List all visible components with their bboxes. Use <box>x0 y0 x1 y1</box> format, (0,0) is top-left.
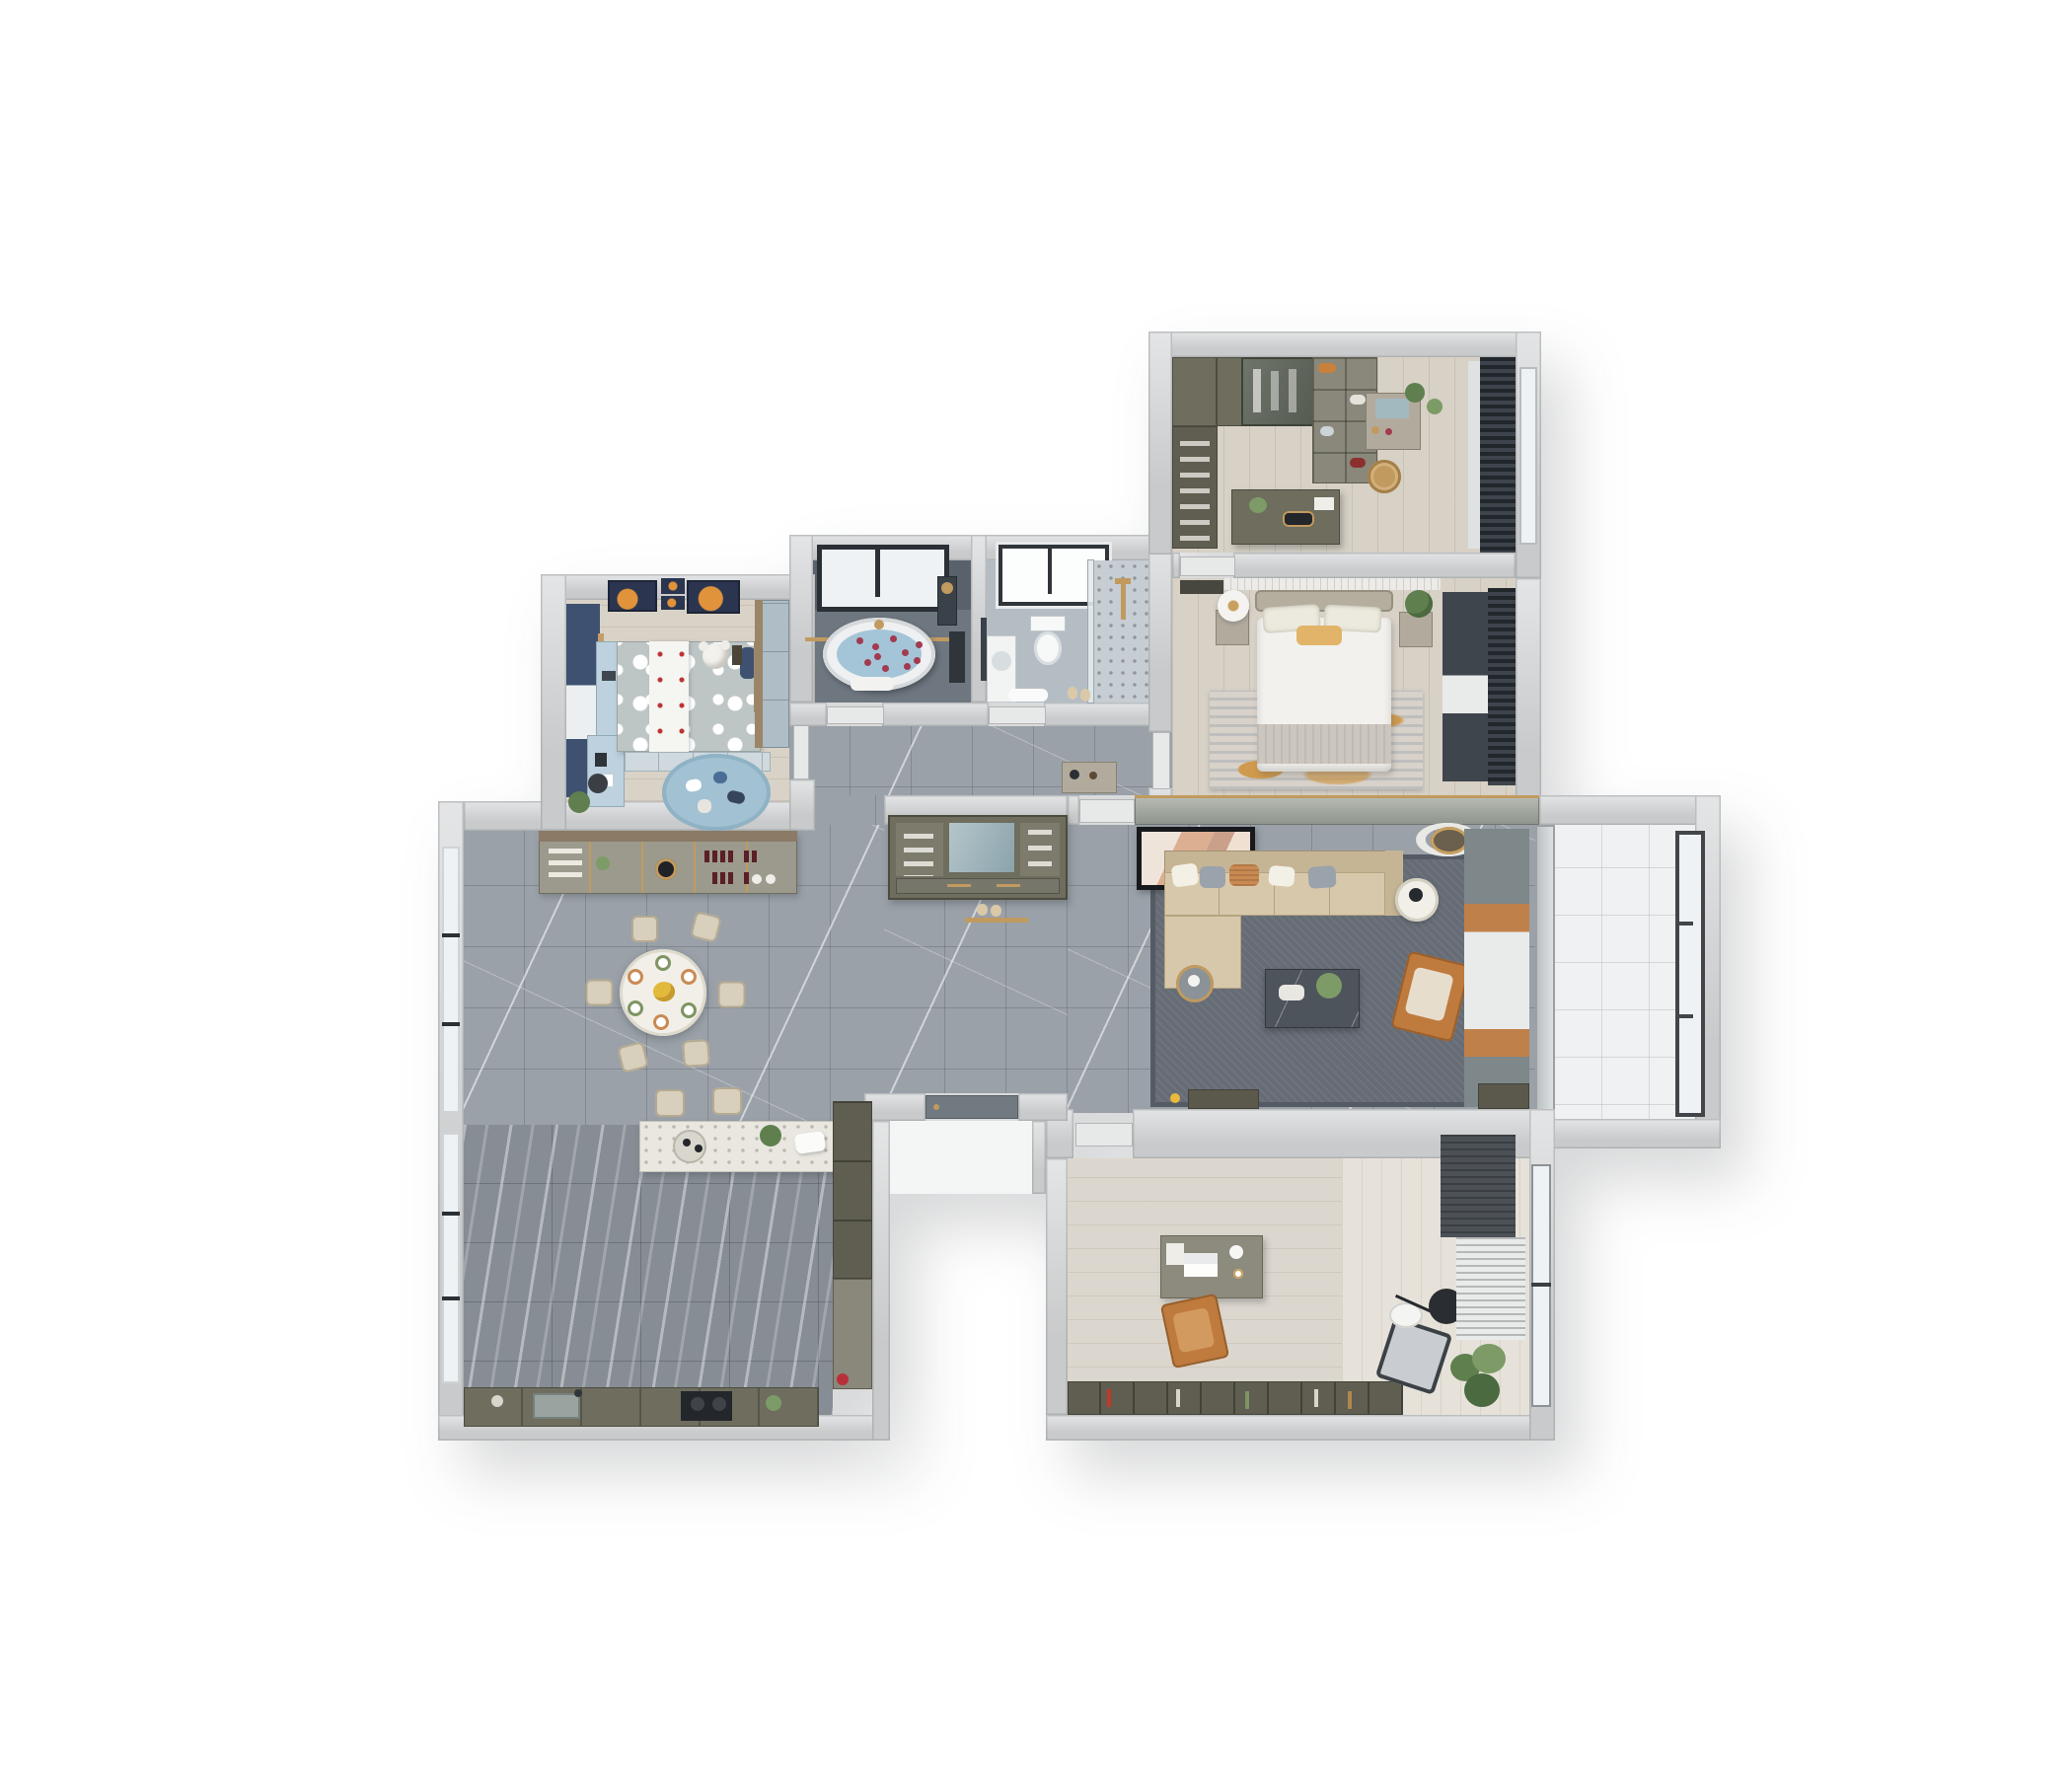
balcony-window <box>1675 831 1705 1117</box>
shoe-cabinet <box>888 815 1068 900</box>
living-room <box>1068 825 1539 1113</box>
wall-kids-east-lower <box>789 779 815 831</box>
study-desk <box>1160 1235 1263 1298</box>
coffee-table <box>1265 969 1360 1028</box>
buffet-wine-cabinet <box>539 831 797 894</box>
wall-porch-2 <box>1018 1093 1068 1121</box>
side-table-right <box>1395 878 1439 922</box>
kids-round-rug <box>662 754 771 831</box>
sofa-pillow-4 <box>1268 865 1295 887</box>
nightstand-lamp <box>1218 590 1249 622</box>
wall-study-south <box>1046 1415 1555 1441</box>
wall-living-north-1 <box>1068 795 1079 825</box>
wall-kitchen-east <box>872 1121 890 1441</box>
glass-wardrobe <box>1241 357 1314 426</box>
wall-porch-east-stub <box>1032 1121 1046 1194</box>
shower-column <box>937 576 957 626</box>
closet-plant-2 <box>1427 399 1443 414</box>
wardrobe-hanging-clothes <box>1172 426 1218 549</box>
bedroom-curtains <box>1443 592 1488 781</box>
master-bedroom <box>1172 578 1516 795</box>
closet-plant-1 <box>1405 383 1425 403</box>
sofa-pillow-3 <box>1229 864 1259 886</box>
dining-chair-2 <box>690 911 722 943</box>
wall-closet-bedroom-1 <box>1172 553 1180 578</box>
closet-island-desk <box>1231 489 1340 545</box>
closet-blinds <box>1480 357 1516 553</box>
wall-bedroom-west-upper <box>1148 535 1172 732</box>
living-curtains <box>1464 829 1529 1107</box>
dining-chair-3 <box>718 982 746 1008</box>
wall-bedroom-east <box>1516 578 1541 825</box>
kitchen-island <box>639 1121 849 1172</box>
study-curtain-dark <box>1441 1135 1516 1237</box>
rattan-basket <box>1368 460 1401 493</box>
bed-foot-blanket <box>1257 724 1391 764</box>
accent-pillow <box>1296 626 1342 645</box>
hall-console <box>1062 762 1117 793</box>
bathroom-shower-door <box>989 706 1046 724</box>
dining-window <box>442 847 460 1113</box>
sofa-pillow-1 <box>1171 862 1200 887</box>
wall-closet-bedroom-2 <box>1233 553 1516 578</box>
entry-slippers <box>977 904 988 916</box>
dining-chair-4 <box>682 1039 710 1068</box>
kitchen-tall-cabinet-2 <box>833 1279 872 1389</box>
media-ledge-left <box>1188 1089 1259 1109</box>
study-window <box>1531 1164 1551 1407</box>
bedroom-blinds <box>1488 588 1516 785</box>
bathroom-shower <box>987 560 1148 703</box>
bedroom-dresser <box>1180 580 1223 594</box>
wall-balcony-south <box>1535 1119 1721 1148</box>
bath-shelf <box>949 631 965 683</box>
red-kettle <box>837 1373 849 1385</box>
dining-room <box>464 825 884 1125</box>
kids-bed-runner <box>649 641 689 752</box>
office-chair <box>1160 1294 1229 1369</box>
bathroom-tub <box>813 560 971 703</box>
dining-chair-5 <box>617 1041 649 1073</box>
yellow-decor <box>1170 1093 1180 1103</box>
closet-window <box>1519 367 1537 545</box>
dining-chair-1 <box>631 916 658 942</box>
study-bookcase <box>1068 1381 1403 1415</box>
toy-reindeer <box>732 645 742 665</box>
bathroom-mirror <box>981 618 987 681</box>
living-hall-door <box>1079 799 1135 823</box>
headboard-wall-paneling <box>1223 578 1441 590</box>
wall-living-north-paneled <box>1135 795 1539 825</box>
bedroom-door <box>1152 732 1170 789</box>
balcony-floor <box>1555 821 1695 1119</box>
kitchen-window <box>442 1133 460 1383</box>
front-door <box>925 1095 1018 1119</box>
dining-chair-6 <box>586 980 614 1006</box>
toilet-tank <box>1030 616 1066 631</box>
dining-table <box>620 949 706 1036</box>
wall-study-west <box>1046 1158 1068 1415</box>
wall-hall-north-1 <box>789 703 827 726</box>
side-table-left <box>1176 965 1214 1002</box>
hall-passage-floor <box>815 795 884 829</box>
shower-fixture <box>1121 582 1126 620</box>
kids-room-door <box>793 722 809 779</box>
kids-plant <box>568 791 590 813</box>
slippers <box>1068 687 1077 700</box>
wall-bathrooms-west <box>789 535 813 703</box>
entry-porch-floor <box>890 1121 1048 1194</box>
bath-towel <box>851 677 894 691</box>
kids-wall-frame-2 <box>661 578 685 594</box>
kitchen-counter <box>464 1387 819 1427</box>
sofa-pillow-2 <box>1200 866 1225 888</box>
nightstand-plant <box>1405 590 1433 618</box>
media-ledge-right <box>1478 1083 1529 1109</box>
kitchen-tall-cabinets <box>833 1101 872 1279</box>
shower-glass <box>1088 560 1093 703</box>
floor-plan: 3D rendered apartment floor plan, top-do… <box>0 0 2072 1776</box>
walk-in-closet <box>1172 357 1516 553</box>
bath-mat <box>1008 689 1048 702</box>
wall-closet-west <box>1148 332 1172 555</box>
wall-balcony-north <box>1539 795 1721 825</box>
wall-closet-north <box>1148 332 1539 357</box>
wall-hall-north-2 <box>882 703 989 726</box>
teddy-bear <box>703 643 728 669</box>
kids-wardrobe <box>755 600 789 748</box>
kids-room <box>566 600 789 801</box>
gold-floor-inlay <box>965 918 1028 923</box>
wall-kids-west <box>541 574 566 831</box>
bathroom-tub-door <box>827 706 884 724</box>
bar-stool-1 <box>655 1089 685 1117</box>
bar-stool-2 <box>712 1087 742 1115</box>
closet-door <box>1180 556 1235 576</box>
study-door <box>1075 1123 1133 1147</box>
study-plant <box>1444 1344 1508 1409</box>
sofa-pillow-5 <box>1307 865 1336 889</box>
closet-sheer <box>1468 361 1480 549</box>
study-curtain-sheer <box>1456 1237 1525 1340</box>
toilet-bowl <box>1034 631 1062 665</box>
kids-chair <box>588 774 608 793</box>
